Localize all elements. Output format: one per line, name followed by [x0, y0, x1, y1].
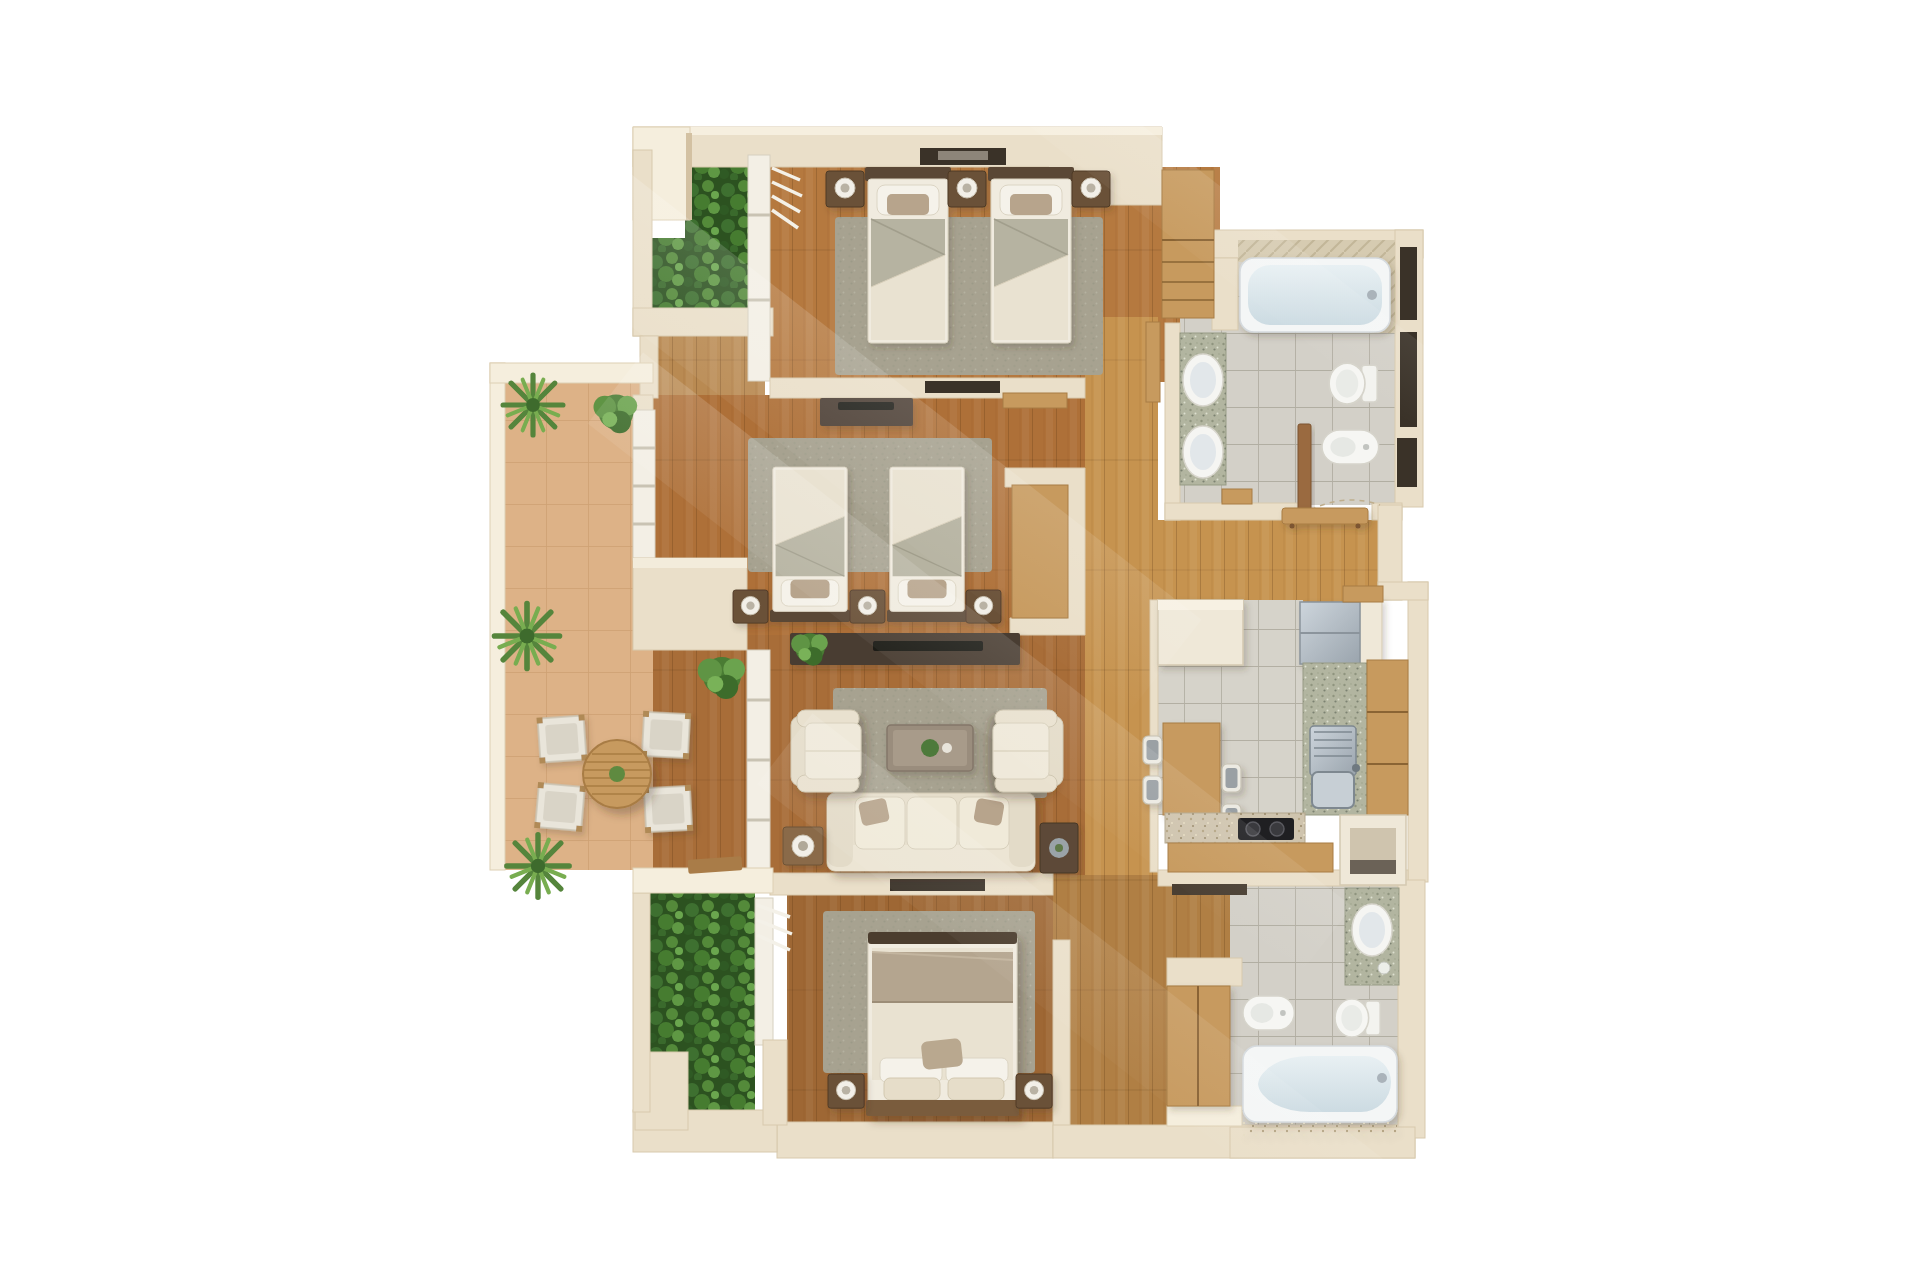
terrace-rail-west [490, 363, 505, 870]
terrace-parapet-north [490, 363, 653, 383]
twin-bed-right [988, 167, 1074, 343]
table-plant [609, 766, 625, 782]
tv [873, 641, 983, 651]
bathtub [1240, 258, 1390, 332]
bidet [1243, 996, 1294, 1030]
tall-cabinet-run [1367, 660, 1408, 815]
wall-shelf [1003, 393, 1067, 408]
twin-bed-left [770, 467, 850, 622]
console-table [1146, 322, 1160, 402]
coffee-table [887, 725, 973, 771]
pillow [948, 1078, 1004, 1100]
sink-counter [1303, 663, 1367, 815]
dining-chair [1222, 764, 1241, 792]
wall-shelf [1222, 489, 1252, 504]
side-table-lamp [783, 827, 823, 865]
footboard [868, 932, 1017, 944]
nightstand [828, 1074, 864, 1108]
dining-table [1163, 723, 1220, 815]
outdoor-chair [536, 714, 587, 763]
counter-corner [1343, 586, 1383, 602]
wall-niche-1 [1400, 247, 1417, 320]
wall-niche-3 [1397, 438, 1417, 487]
tub-faucet [1377, 1073, 1387, 1083]
potted-palm [495, 604, 560, 669]
double-bed [866, 932, 1019, 1116]
round-table [583, 740, 651, 808]
floor-plan-page [0, 0, 1920, 1280]
tall-cabinet [1167, 986, 1230, 1106]
nightstand [733, 590, 768, 623]
bidet [1322, 430, 1379, 464]
terrace-corner-wall [633, 558, 747, 650]
headboard [866, 1100, 1019, 1116]
kitchen-faucet [1352, 764, 1360, 772]
appliance-niche [1340, 815, 1406, 885]
bedroom-bottom-window [755, 898, 792, 1045]
potted-palm [503, 375, 563, 435]
bedroom-middle-window [633, 410, 655, 560]
pillow [884, 1078, 940, 1100]
nightstand [1016, 1074, 1052, 1108]
built-in-wardrobe [1162, 170, 1214, 318]
outdoor-chair [534, 782, 586, 832]
refrigerator [1300, 598, 1382, 666]
accent-cushion [921, 1038, 964, 1070]
bedroom-bottom [823, 911, 1052, 1116]
floor-plan-render [0, 0, 1920, 1280]
double-vanity [1180, 333, 1226, 485]
nightstand [826, 171, 864, 207]
tv [838, 402, 894, 410]
living-terrace-glass-wall [747, 650, 770, 870]
twin-bed-right [887, 467, 967, 622]
dining-chair [1143, 776, 1162, 804]
wall-niche-2 [1400, 332, 1417, 427]
nightstand [948, 171, 986, 207]
desk-unit [1005, 468, 1085, 635]
twin-bed-left [865, 167, 951, 343]
cooktop-counter [1165, 813, 1333, 872]
south-wall [777, 1122, 1053, 1158]
bathtub [1243, 1046, 1397, 1136]
armchair-right [993, 710, 1063, 792]
media-console [820, 398, 913, 426]
nightstand [966, 590, 1001, 623]
toilet [1335, 999, 1380, 1037]
side-table-bowl [1040, 823, 1078, 873]
vanity [1345, 888, 1399, 985]
table-plant [921, 739, 939, 757]
tub-faucet [1367, 290, 1377, 300]
armchair-left [791, 710, 861, 792]
nightstand [1072, 171, 1110, 207]
dining-chair [1143, 736, 1162, 764]
outdoor-chair [643, 785, 693, 833]
potted-palm [507, 835, 569, 897]
sofa [827, 793, 1035, 871]
outdoor-chair [641, 711, 691, 759]
tv-niche-bedroom-top [925, 381, 1000, 393]
wall-shelf-dark [1172, 884, 1247, 895]
nightstand [850, 590, 885, 623]
drainboard [1310, 726, 1356, 776]
counter-front [1168, 843, 1333, 872]
sink-bowl [1312, 772, 1354, 808]
throw-pillow [973, 798, 1005, 826]
desk-top [1012, 485, 1068, 618]
upper-cabinet [1158, 600, 1243, 665]
toilet [1329, 363, 1377, 404]
tv-niche-bedroom-bottom [890, 879, 985, 891]
